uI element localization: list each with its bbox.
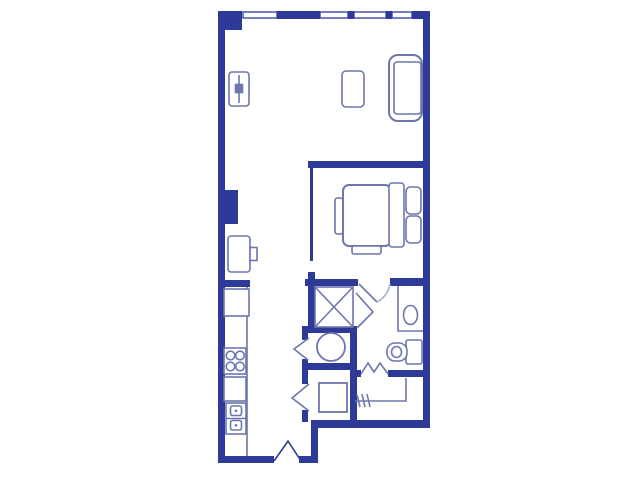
closet-bifold-door [361, 363, 388, 374]
sofa-seat [394, 62, 421, 114]
bed-mattress [343, 185, 391, 246]
utility-door [292, 384, 309, 411]
bottom-wall-left [218, 456, 274, 463]
burner-3 [226, 362, 235, 371]
kitchen-sink [224, 289, 249, 316]
washer [317, 333, 345, 361]
bedroom-left-wall [310, 168, 313, 261]
utility-unit [319, 383, 347, 412]
bed-footboard [335, 198, 343, 234]
shower-left-wall [308, 286, 315, 333]
top-wall-mullion-2 [386, 11, 392, 19]
hall-wall-stub-c [302, 410, 308, 422]
laundry-mid-wall [302, 363, 350, 370]
closet-divider-wall-right [388, 370, 423, 377]
bathroom-top-wall-right [390, 278, 423, 286]
bathroom-corner-stub [308, 272, 315, 286]
kitchen-wall-stub [218, 280, 250, 287]
radiator-knob [236, 85, 243, 93]
shower-door [356, 293, 373, 328]
entry-door [274, 441, 301, 461]
burner-2 [236, 351, 245, 360]
top-wall-mullion-1 [348, 11, 354, 19]
vanity-sink [404, 306, 418, 325]
window-3 [354, 12, 386, 18]
right-exterior-wall [423, 11, 430, 428]
drawer-dot-2 [235, 424, 238, 427]
top-wall-segment-a [277, 11, 320, 19]
left-wall-column [218, 190, 238, 224]
tv-console [228, 236, 250, 272]
bed-duvet-fold [389, 183, 404, 247]
hall-wall-stub-b [302, 359, 308, 384]
bedroom-divider-wall [308, 161, 430, 168]
burner-1 [226, 351, 235, 360]
drawer-dot-1 [235, 410, 238, 413]
side-table [342, 71, 364, 107]
oven [224, 377, 246, 401]
bed-pillow-1 [406, 187, 421, 214]
closet-divider-wall-left [355, 370, 361, 377]
bathroom-door-arc [377, 284, 390, 302]
window-2 [320, 12, 348, 18]
burner-4 [236, 362, 245, 371]
tv-console-knob [250, 248, 257, 261]
toilet-bowl-inner [392, 347, 402, 358]
window-1 [243, 12, 277, 18]
toilet-tank [406, 340, 422, 364]
floor-plan [0, 0, 640, 480]
bottom-wall-right-section [311, 420, 430, 428]
floor-plan-page [0, 0, 640, 480]
bed-bench [352, 246, 381, 254]
top-wall-segment-b [412, 11, 424, 19]
bed-pillow-2 [406, 216, 421, 243]
laundry-door [294, 338, 309, 360]
window-4 [392, 12, 412, 18]
